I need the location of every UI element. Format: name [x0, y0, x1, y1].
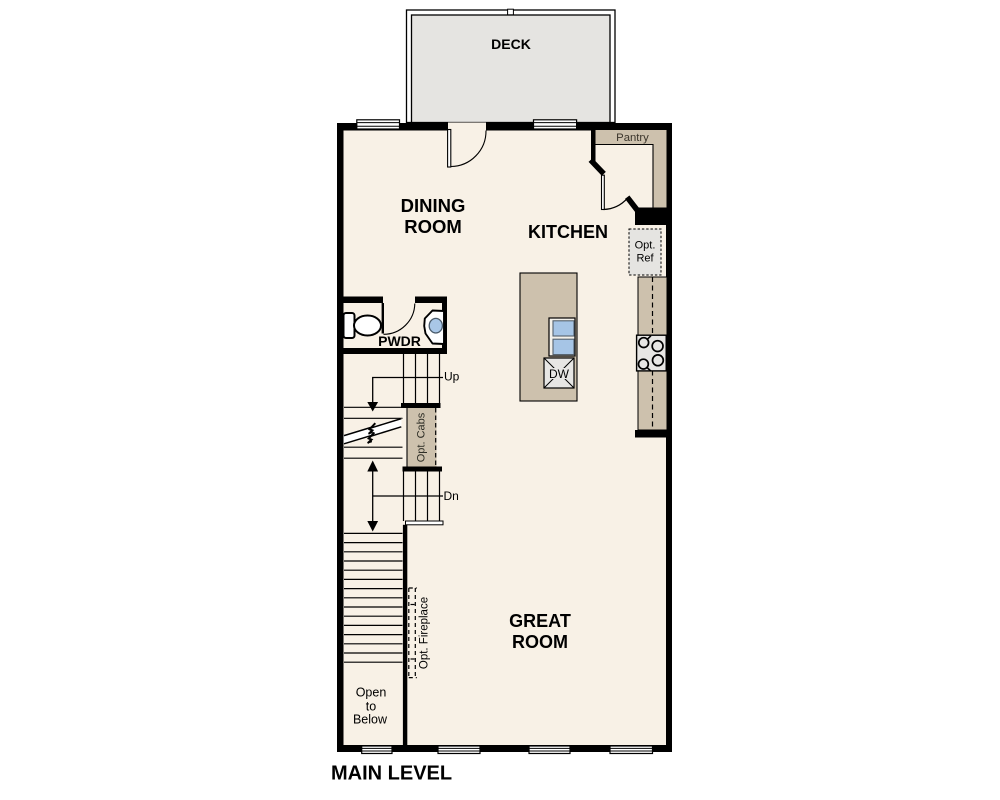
svg-text:GREAT: GREAT	[509, 611, 571, 631]
svg-text:MAIN LEVEL: MAIN LEVEL	[331, 763, 452, 785]
svg-text:Below: Below	[353, 713, 388, 727]
svg-text:Opt. Fireplace: Opt. Fireplace	[419, 597, 431, 669]
svg-text:Opt.: Opt.	[635, 240, 656, 252]
svg-text:to: to	[366, 700, 376, 714]
svg-text:KITCHEN: KITCHEN	[528, 222, 608, 242]
svg-text:ROOM: ROOM	[404, 216, 462, 237]
svg-text:DW: DW	[549, 367, 570, 381]
svg-text:Dn: Dn	[444, 489, 459, 503]
svg-text:PWDR: PWDR	[378, 333, 421, 349]
svg-text:ROOM: ROOM	[512, 632, 568, 652]
svg-text:Ref: Ref	[636, 253, 654, 265]
svg-text:Up: Up	[444, 370, 460, 384]
svg-text:Opt. Cabs: Opt. Cabs	[416, 412, 428, 462]
svg-text:DECK: DECK	[491, 36, 531, 52]
svg-text:Open: Open	[356, 686, 387, 700]
svg-text:Pantry: Pantry	[616, 132, 649, 144]
svg-text:DINING: DINING	[401, 195, 466, 216]
